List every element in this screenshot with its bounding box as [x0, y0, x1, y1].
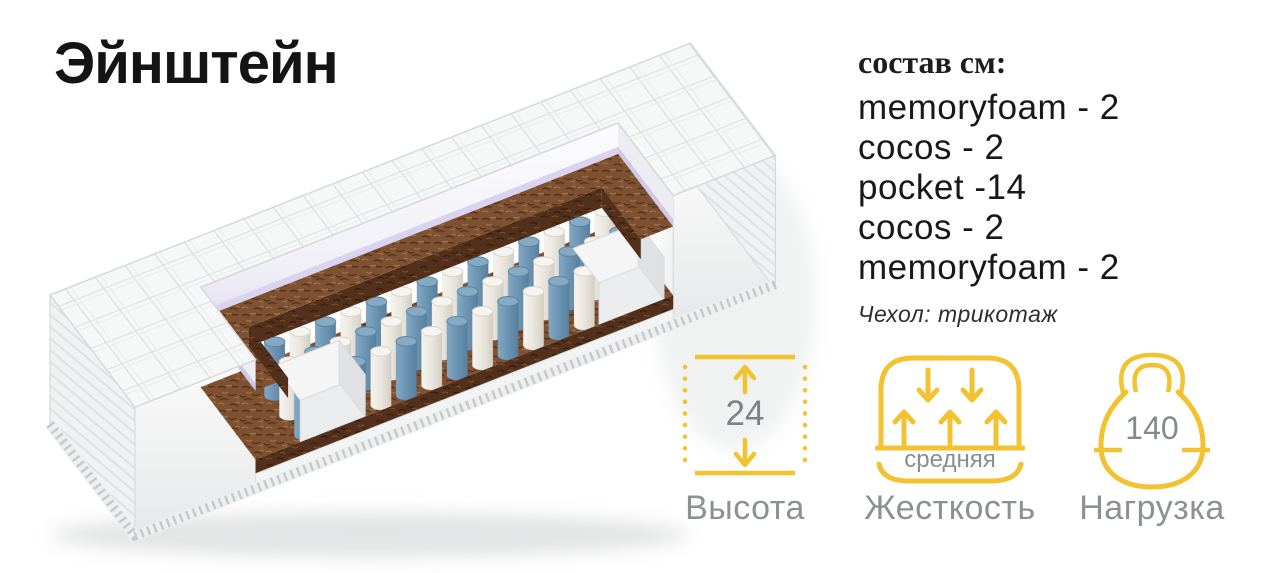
- firmness-label: Жесткость: [845, 489, 1055, 528]
- height-value: 24: [660, 394, 830, 434]
- composition-layer: cocos - 2: [858, 128, 1278, 168]
- composition-layer: cocos - 2: [858, 208, 1278, 248]
- composition-panel: состав см: memoryfoam - 2 cocos - 2 pock…: [858, 44, 1278, 328]
- height-label: Высота: [660, 489, 830, 528]
- cover-note: Чехол: трикотаж: [858, 301, 1278, 328]
- product-infographic: Эйнштейн: [0, 0, 1281, 573]
- composition-layer: memoryfoam - 2: [858, 88, 1278, 128]
- spec-card-height: 24 Высота: [660, 350, 830, 528]
- composition-heading: состав см:: [858, 44, 1278, 80]
- composition-layer: memoryfoam - 2: [858, 248, 1278, 288]
- load-value: 140: [1057, 410, 1247, 447]
- firmness-value: средняя: [845, 446, 1055, 474]
- spec-card-load: 140 Нагрузка: [1057, 350, 1247, 528]
- load-label: Нагрузка: [1057, 489, 1247, 528]
- composition-layer: pocket -14: [858, 168, 1278, 208]
- spec-card-firmness: средняя Жесткость: [845, 350, 1055, 528]
